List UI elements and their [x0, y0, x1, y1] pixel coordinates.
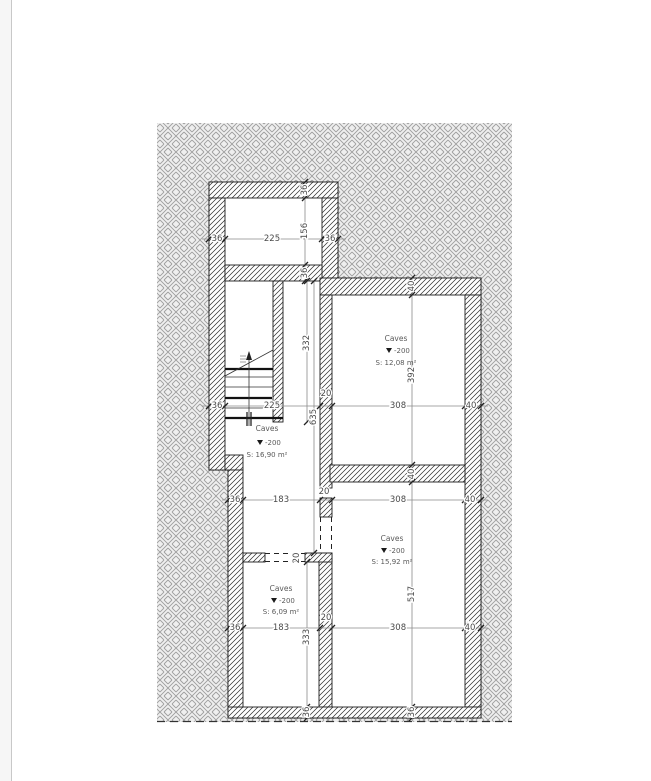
dim-label: 40 [465, 495, 476, 505]
room-name: Caves [270, 584, 293, 593]
dim-label: 40 [407, 469, 417, 480]
dim-label: 36 [230, 623, 241, 633]
room-level: -200 [279, 597, 295, 605]
wall-bottom [228, 707, 481, 718]
room-area: S: 6,09 m² [263, 608, 300, 616]
dim-label: 225 [264, 234, 280, 244]
room-level: -200 [394, 347, 410, 355]
dim-label: 308 [390, 623, 406, 633]
dim-label: 36 [300, 268, 310, 279]
dim-label: 36 [325, 234, 336, 244]
dim-label: 635 [309, 409, 319, 425]
room-level: -200 [389, 547, 405, 555]
dim-label: 517 [407, 586, 417, 602]
wall-corridor-right-stub [320, 498, 332, 517]
dim-label: 20 [321, 613, 332, 623]
dim-label: 308 [390, 495, 406, 505]
dim-label: 40 [465, 623, 476, 633]
room-name: Caves [385, 334, 408, 343]
dim-label: 36 [230, 495, 241, 505]
dim-label: 20 [319, 487, 330, 497]
room-area: S: 15,92 m² [372, 558, 413, 566]
dim-label: 40 [466, 401, 477, 411]
room-name: Caves [381, 534, 404, 543]
wall-top [209, 182, 338, 198]
wall-room1-top [320, 278, 481, 295]
dim-label: 225 [264, 401, 280, 411]
dim-label: 36 [407, 707, 417, 718]
wall-mid-band [330, 465, 465, 482]
dim-label: 36 [212, 401, 223, 411]
wall-left-lower [228, 470, 243, 707]
dim-label: 332 [302, 335, 312, 351]
dim-label: 20 [292, 553, 302, 564]
dim-label: 183 [273, 623, 289, 633]
dim-label: 40 [407, 281, 417, 292]
drawing-page: 36 225 36 36 156 36 40 392 40 517 36 332… [0, 0, 651, 781]
dim-label: 36 [300, 185, 310, 196]
wall-left-notch [225, 455, 243, 470]
floor-plan-canvas: 36 225 36 36 156 36 40 392 40 517 36 332… [0, 0, 651, 781]
dim-label: 20 [321, 389, 332, 399]
dim-label: 183 [273, 495, 289, 505]
dim-label: 156 [300, 223, 310, 239]
dim-label: 308 [390, 401, 406, 411]
dim-label: 36 [302, 707, 312, 718]
dim-label: 333 [302, 629, 312, 645]
wall-room4-top-left [243, 553, 265, 562]
page-gutter [0, 0, 11, 781]
dim-label: 392 [407, 367, 417, 383]
room-area: S: 16,90 m² [247, 451, 288, 459]
room-name: Caves [256, 424, 279, 433]
room-level: -200 [265, 439, 281, 447]
dim-label: 36 [212, 234, 223, 244]
room-area: S: 12,08 m² [376, 359, 417, 367]
